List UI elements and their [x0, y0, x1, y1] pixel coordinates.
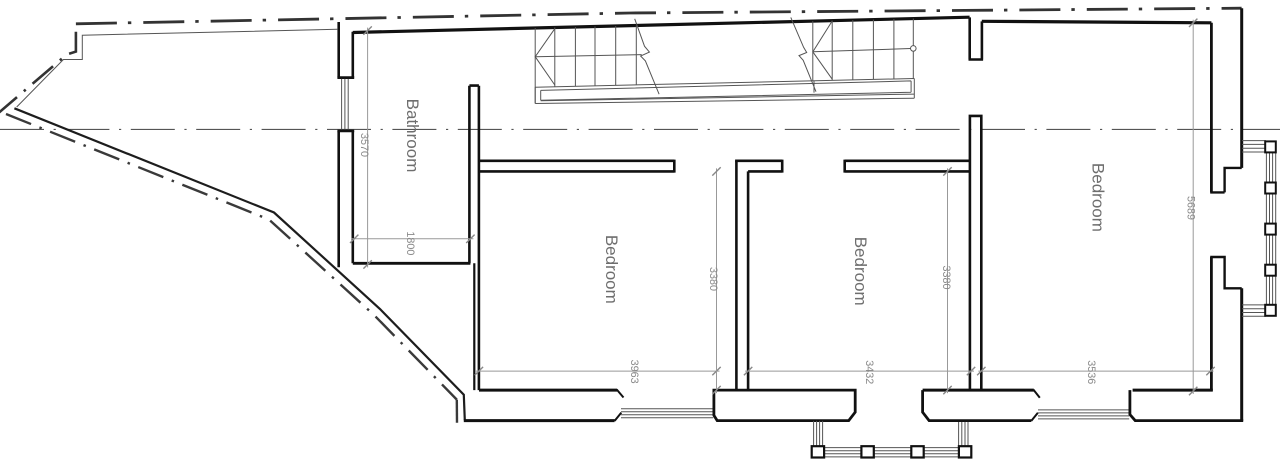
svg-text:3380: 3380: [940, 265, 952, 289]
svg-text:3570: 3570: [358, 133, 370, 157]
svg-text:Bedroom: Bedroom: [1089, 163, 1108, 232]
svg-text:1800: 1800: [404, 231, 416, 255]
svg-text:3380: 3380: [707, 267, 719, 291]
svg-text:3432: 3432: [863, 360, 875, 384]
svg-text:5689: 5689: [1185, 196, 1197, 220]
svg-text:3963: 3963: [628, 360, 640, 384]
svg-text:3536: 3536: [1085, 360, 1097, 384]
svg-text:Bedroom: Bedroom: [602, 235, 621, 304]
svg-text:Bathroom: Bathroom: [403, 99, 422, 173]
svg-text:Bedroom: Bedroom: [851, 237, 870, 306]
